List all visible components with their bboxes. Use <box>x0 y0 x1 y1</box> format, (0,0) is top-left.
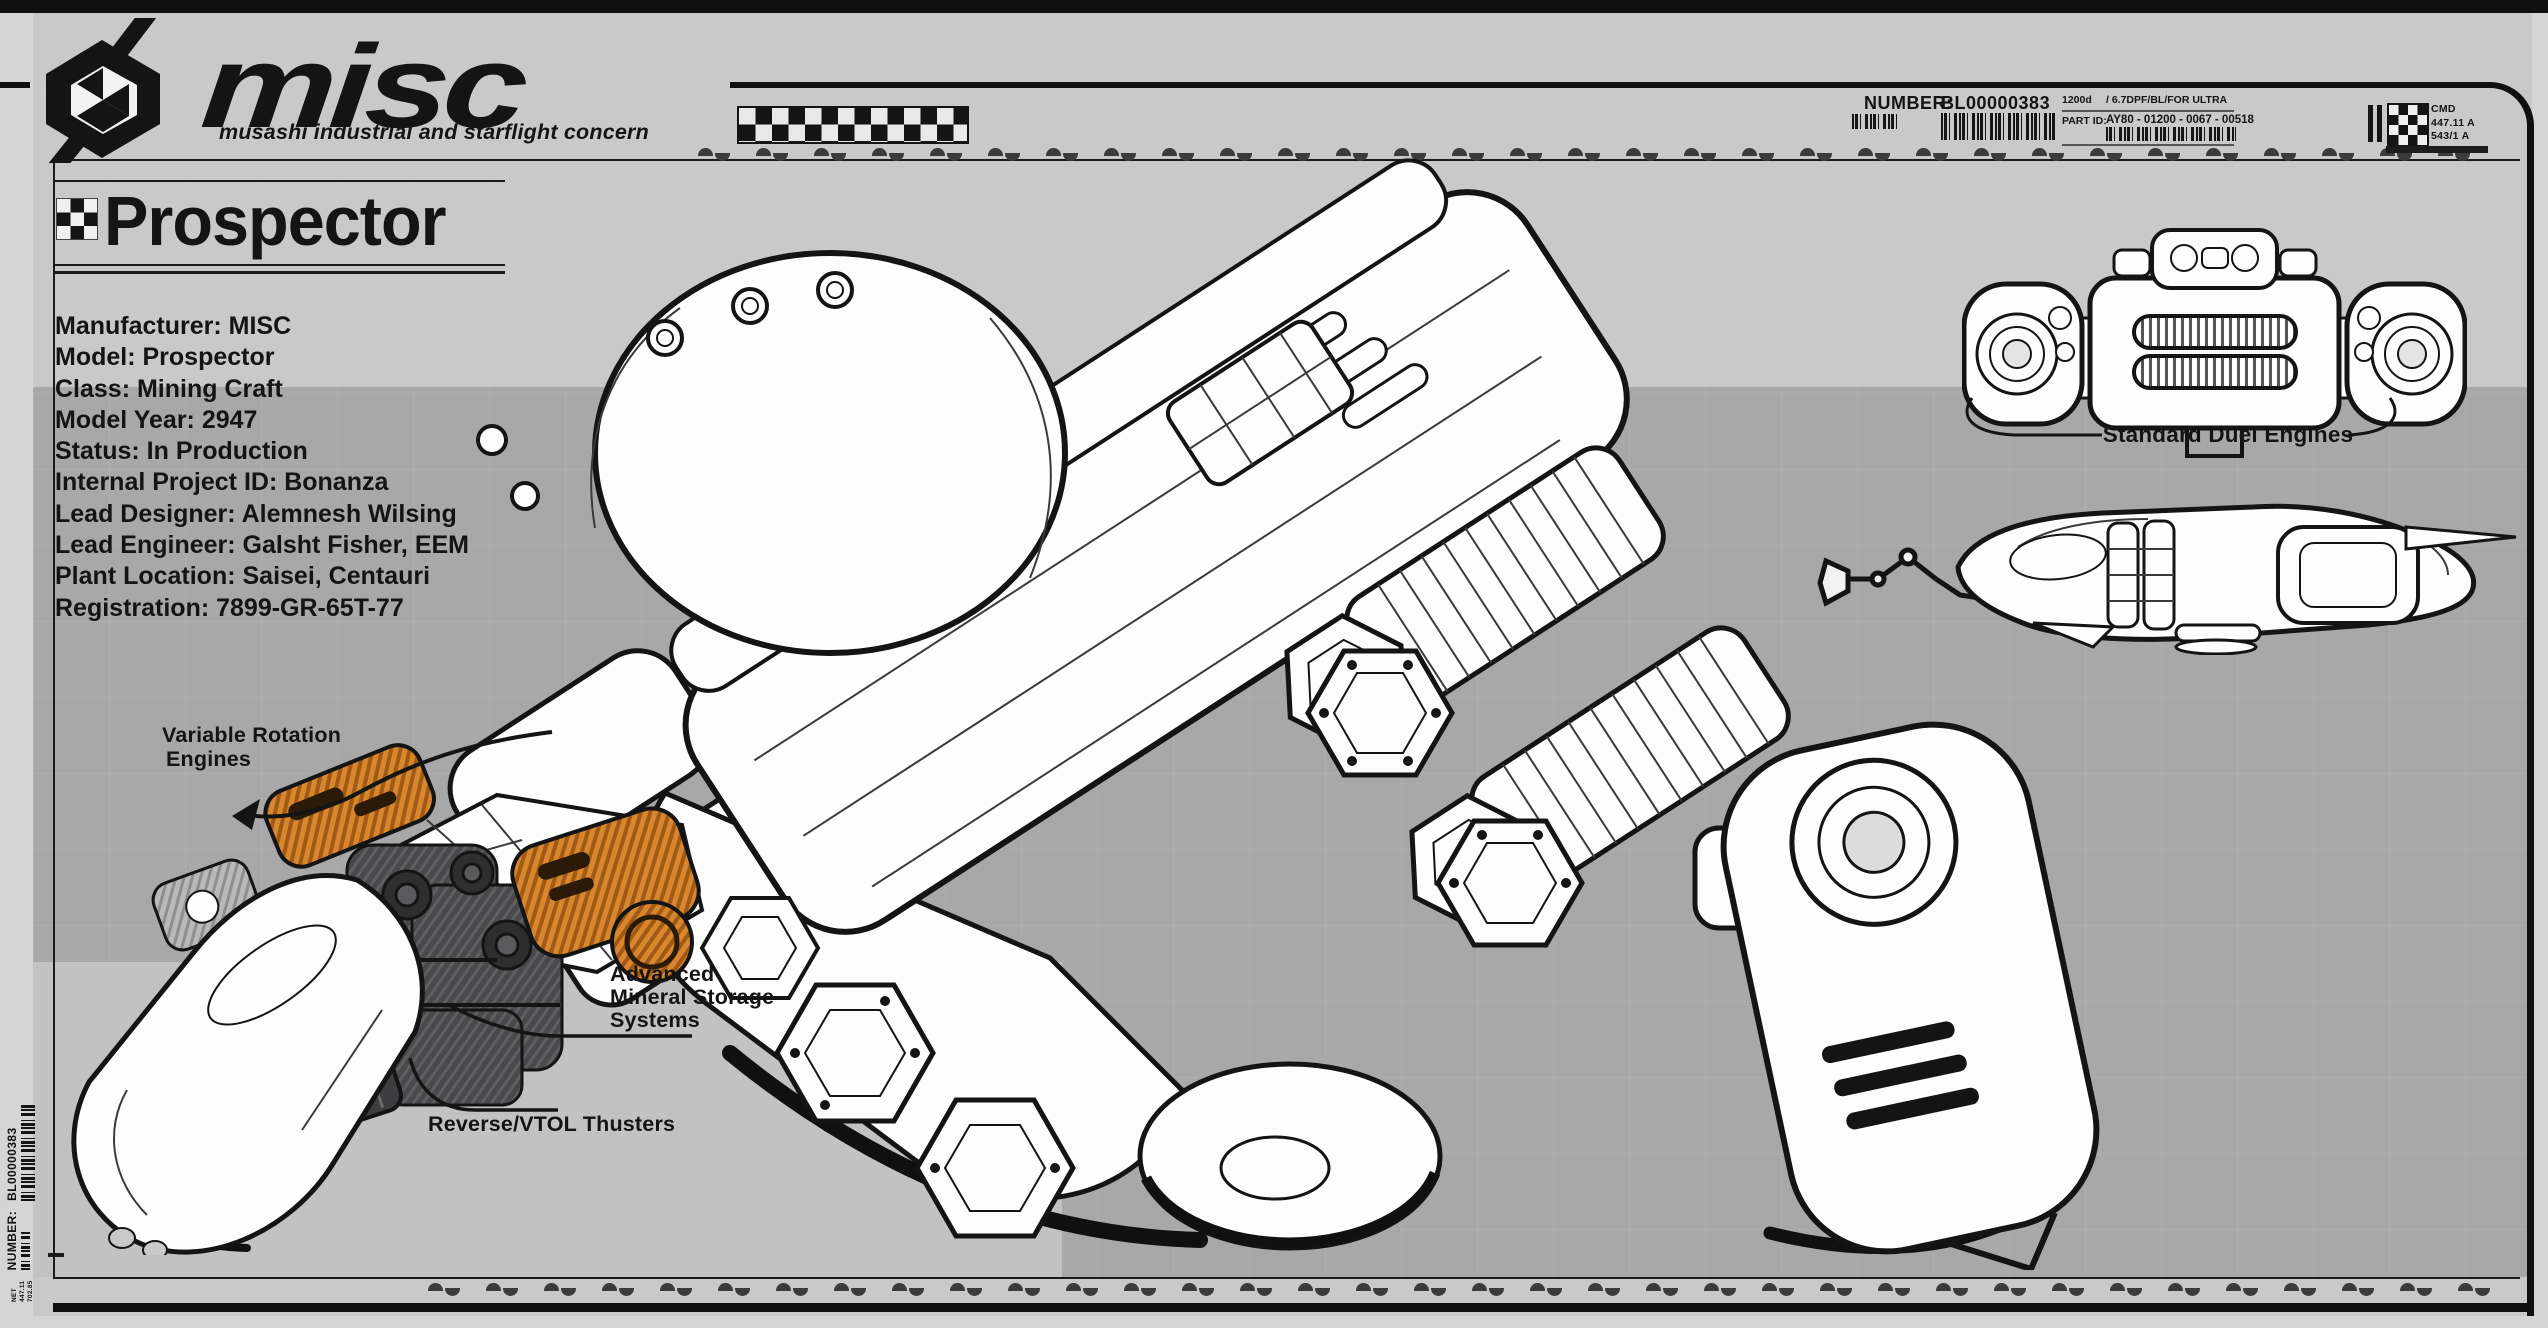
checkerboard-strip <box>737 106 969 144</box>
spec-plant-location: Plant Location: Saisei, Centauri <box>55 561 469 592</box>
register-underline <box>2386 146 2488 153</box>
side-label-rotated: NET 447.11 702.85 NUMBER: BL00000383 <box>5 1032 35 1302</box>
frame-bottom-thin-line <box>53 1277 2520 1279</box>
spec-project-id: Internal Project ID: Bonanza <box>55 467 469 498</box>
side-barcode-large <box>21 1103 35 1201</box>
misc-logo-emblem <box>22 18 202 163</box>
register-text: CMD 447.11 A 543/1 A <box>2431 103 2475 144</box>
spec-manufacturer: Manufacturer: MISC <box>55 311 469 342</box>
register-line3: 543/1 A <box>2431 130 2475 144</box>
register-line1: CMD <box>2431 103 2475 117</box>
annotation-mineral-storage: Advanced Mineral Storage Systems <box>610 963 774 1032</box>
side-number-label: NUMBER: <box>5 1211 19 1270</box>
spec-list: Manufacturer: MISC Model: Prospector Cla… <box>55 311 469 624</box>
register-bar-1 <box>2368 105 2373 142</box>
side-net-line: NET <box>11 1280 19 1302</box>
register-checker-square <box>2387 103 2429 147</box>
meta-right: / 6.7DPF/BL/FOR ULTRA <box>2106 94 2227 106</box>
number-value: BL00000383 <box>1941 93 2050 114</box>
meta-divider-1 <box>2062 110 2234 112</box>
registration-dome-marks-bottom <box>428 1281 2516 1299</box>
right-engine-pod <box>1705 706 2100 1270</box>
part-id-value: AY80 - 01200 - 0067 - 00518 <box>2106 114 2254 126</box>
meta-divider-2 <box>2062 144 2234 146</box>
checker-icon <box>56 198 98 240</box>
annotation-line: Engines <box>162 747 341 771</box>
meta-left: 1200d <box>2062 94 2092 106</box>
register-line2: 447.11 A <box>2431 117 2475 131</box>
misc-tagline: musashi industrial and starflight concer… <box>219 120 649 145</box>
spec-registration: Registration: 7899-GR-65T-77 <box>55 593 469 624</box>
spec-lead-engineer: Lead Engineer: Galsht Fisher, EEM <box>55 530 469 561</box>
spec-class: Class: Mining Craft <box>55 374 469 405</box>
side-number-value: BL00000383 <box>5 1103 19 1201</box>
annotation-vtol-thrusters: Reverse/VTOL Thusters <box>428 1112 675 1137</box>
annotation-line: Systems <box>610 1009 774 1032</box>
spec-status: Status: In Production <box>55 436 469 467</box>
annotation-duel-engines: Standard Duel Engines <box>2100 422 2356 448</box>
barcode-number <box>1941 113 2057 140</box>
annotation-line: Advanced <box>610 963 774 986</box>
side-number-label-block: NUMBER: <box>5 1211 30 1270</box>
spec-model-year: Model Year: 2947 <box>55 405 469 436</box>
part-id-label: PART ID: <box>2062 115 2107 127</box>
register-bar-2 <box>2377 105 2382 142</box>
annotation-line: Mineral Storage <box>610 986 774 1009</box>
blueprint-poster: misc musashi industrial and starflight c… <box>0 0 2548 1328</box>
number-label: NUMBER: <box>1864 93 1953 114</box>
nose-dome <box>595 253 1065 653</box>
side-net-line: 447.11 <box>19 1280 27 1302</box>
frame-bottom-bar <box>53 1303 2527 1312</box>
right-engine <box>2347 284 2465 424</box>
annotation-variable-rotation: Variable Rotation Engines <box>162 723 341 771</box>
annotation-line: Variable Rotation <box>162 723 341 747</box>
side-net-line: 702.85 <box>27 1280 35 1302</box>
nose-hull <box>74 876 422 1252</box>
left-engine <box>1964 284 2082 424</box>
spec-lead-designer: Lead Designer: Alemnesh Wilsing <box>55 499 469 530</box>
side-barcode-small <box>21 1232 30 1270</box>
profile-view-drawing <box>1808 487 2520 655</box>
top-black-bar <box>0 0 2548 13</box>
side-number-value-block: BL00000383 <box>5 1103 35 1201</box>
spec-model: Model: Prospector <box>55 342 469 373</box>
barcode-part-id <box>2106 127 2236 141</box>
barcode-small <box>1852 114 1898 129</box>
page-title: Prospector <box>104 186 446 256</box>
side-net-values: NET 447.11 702.85 <box>11 1280 35 1302</box>
